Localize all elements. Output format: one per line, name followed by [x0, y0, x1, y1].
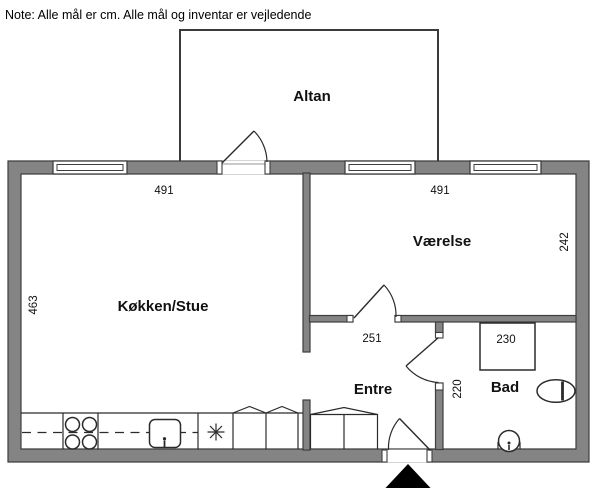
- room-label-vaerelse: Værelse: [413, 233, 471, 250]
- entry-door: [382, 419, 432, 489]
- shower-cabin: [480, 323, 535, 370]
- note: Note: Alle mål er cm. Alle mål og invent…: [5, 8, 311, 22]
- window-bedroom-left: [345, 161, 415, 174]
- bathroom-door-leaf: [406, 338, 439, 367]
- room-label-kokken-stue: Køkken/Stue: [118, 298, 209, 315]
- window-kitchen: [53, 161, 127, 174]
- dim-kokken-depth: 463: [28, 295, 40, 314]
- sink-faucet-head: [163, 437, 166, 440]
- snowflake-icon: [208, 424, 225, 441]
- door-jamb: [436, 383, 444, 390]
- bathroom-door: [406, 338, 439, 383]
- entry-door-swing-arc: [388, 419, 399, 451]
- room-label-altan: Altan: [293, 88, 331, 105]
- window-glass: [57, 165, 123, 171]
- window-bedroom-right: [470, 161, 541, 174]
- cabinet-door-peak: [266, 407, 298, 414]
- balcony-door-opening: [217, 161, 270, 175]
- wall-kitchen-entre: [303, 400, 310, 450]
- window-glass: [474, 165, 537, 171]
- door-jamb: [265, 161, 270, 174]
- door-jamb: [217, 161, 222, 174]
- washbasin-faucet-head: [508, 442, 511, 445]
- wall-entre-bath: [436, 383, 444, 450]
- cabinet-door-peak: [233, 407, 266, 414]
- burner: [66, 435, 80, 449]
- entry-door-leaf: [400, 419, 431, 451]
- door-jamb: [347, 316, 353, 323]
- door-jamb: [382, 450, 387, 462]
- dim-bad-width: 230: [496, 334, 515, 346]
- interior-walls: [303, 173, 576, 450]
- wall-bath-stub: [436, 322, 444, 333]
- kitchen: [21, 407, 303, 450]
- burner: [66, 418, 80, 432]
- toilet-icon: [537, 380, 575, 403]
- entry-door-opening: [382, 450, 432, 463]
- wall-kitchen-bedroom: [303, 173, 310, 352]
- burner: [83, 435, 97, 449]
- dim-bad-depth: 220: [452, 379, 464, 398]
- wall-bedroom-bath-top: [395, 316, 576, 323]
- door-jamb: [427, 450, 432, 462]
- window-glass: [349, 165, 411, 171]
- dim-vaerelse-width: 491: [430, 185, 449, 197]
- door-jamb: [436, 333, 444, 339]
- bathroom-door-swing-arc: [406, 366, 439, 383]
- kitchen-sink-icon: [150, 420, 181, 448]
- bedroom-door: [354, 285, 396, 318]
- dim-kokken-width: 491: [154, 185, 173, 197]
- entrance-arrow-icon: [386, 464, 431, 488]
- washbasin-icon: [498, 431, 520, 452]
- stove-burners-icon: [66, 418, 97, 450]
- dim-vaerelse-depth: 242: [559, 232, 571, 251]
- room-label-bad: Bad: [491, 379, 519, 396]
- burner: [83, 418, 97, 432]
- floor-plan: Note: Alle mål er cm. Alle mål og invent…: [0, 0, 600, 495]
- wardrobe-door-peak: [311, 408, 378, 415]
- wardrobe: [311, 408, 378, 450]
- dim-entre-width: 251: [362, 333, 381, 345]
- bedroom-door-leaf: [354, 285, 384, 318]
- toilet-bowl: [537, 380, 575, 403]
- room-label-entre: Entre: [354, 381, 392, 398]
- bedroom-door-swing-arc: [384, 285, 396, 317]
